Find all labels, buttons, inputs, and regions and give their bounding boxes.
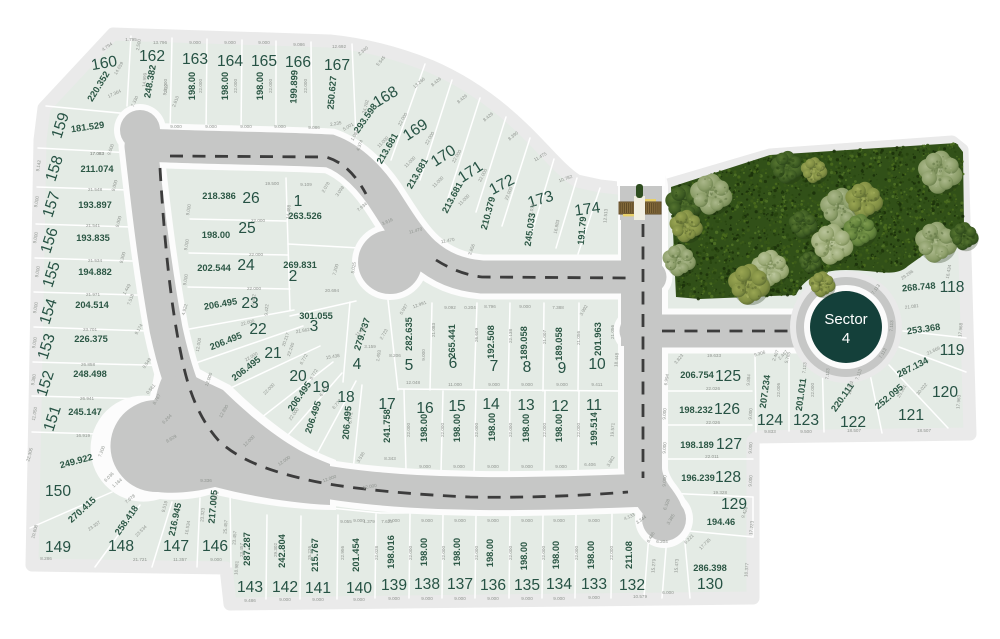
svg-text:211.074: 211.074 — [80, 164, 114, 174]
svg-text:22.011: 22.011 — [705, 454, 719, 459]
svg-text:165: 165 — [251, 53, 277, 70]
svg-text:22.000: 22.000 — [609, 546, 614, 560]
svg-text:9.055: 9.055 — [340, 519, 352, 524]
svg-text:198.016: 198.016 — [386, 535, 396, 569]
svg-text:7.113: 7.113 — [825, 368, 831, 380]
svg-text:9.000: 9.000 — [553, 596, 565, 601]
svg-text:198.00: 198.00 — [419, 538, 429, 566]
svg-text:192.508: 192.508 — [486, 325, 496, 359]
svg-text:241.758: 241.758 — [382, 409, 392, 443]
svg-text:11.357: 11.357 — [173, 557, 187, 562]
svg-text:127: 127 — [716, 436, 742, 453]
svg-text:201.454: 201.454 — [351, 537, 361, 571]
svg-text:9.000: 9.000 — [662, 407, 668, 419]
svg-text:22.026: 22.026 — [706, 420, 720, 425]
svg-text:198.00: 198.00 — [551, 541, 561, 569]
svg-text:22.000: 22.000 — [576, 423, 581, 437]
svg-text:198.00: 198.00 — [419, 414, 429, 442]
svg-text:Sector: Sector — [824, 311, 867, 328]
svg-text:118: 118 — [940, 279, 965, 296]
svg-text:4.922: 4.922 — [251, 293, 257, 305]
svg-text:7.388: 7.388 — [552, 305, 564, 310]
svg-text:25.226: 25.226 — [307, 546, 312, 560]
svg-text:9.000: 9.000 — [487, 596, 499, 601]
svg-text:9.411: 9.411 — [591, 382, 603, 387]
svg-text:20.694: 20.694 — [325, 288, 339, 293]
svg-text:198.00: 198.00 — [485, 539, 495, 567]
svg-text:13: 13 — [517, 397, 534, 414]
svg-text:22.000: 22.000 — [198, 79, 203, 93]
svg-text:22.000: 22.000 — [408, 546, 413, 560]
svg-text:263.526: 263.526 — [288, 211, 322, 221]
svg-text:9.486: 9.486 — [244, 598, 256, 603]
svg-text:286.398: 286.398 — [693, 563, 727, 573]
svg-text:6.000: 6.000 — [662, 590, 674, 595]
svg-text:9.000: 9.000 — [748, 441, 754, 453]
svg-text:19.633: 19.633 — [707, 353, 721, 358]
svg-text:9.422: 9.422 — [264, 303, 270, 315]
svg-text:164: 164 — [217, 53, 243, 70]
svg-text:8.343: 8.343 — [384, 456, 396, 461]
svg-text:141: 141 — [305, 580, 331, 597]
svg-text:198.00: 198.00 — [521, 414, 531, 442]
svg-text:9.000: 9.000 — [419, 464, 431, 469]
svg-text:269.831: 269.831 — [283, 260, 317, 270]
svg-text:21.541: 21.541 — [86, 223, 100, 228]
svg-text:9.336: 9.336 — [200, 478, 212, 483]
svg-text:12.692: 12.692 — [332, 44, 346, 49]
svg-text:9.000: 9.000 — [189, 40, 201, 45]
svg-text:21.534: 21.534 — [88, 258, 102, 263]
svg-text:8: 8 — [523, 359, 532, 376]
svg-text:21: 21 — [264, 345, 281, 362]
svg-text:23.701: 23.701 — [83, 327, 97, 332]
svg-text:9.000: 9.000 — [353, 597, 365, 602]
svg-text:9.109: 9.109 — [300, 182, 312, 187]
svg-text:1: 1 — [294, 193, 303, 210]
svg-text:10.579: 10.579 — [633, 594, 647, 599]
svg-text:123: 123 — [793, 412, 819, 429]
svg-text:18.507: 18.507 — [917, 428, 931, 433]
svg-text:6.204: 6.204 — [656, 539, 668, 544]
svg-text:9.000: 9.000 — [453, 464, 465, 469]
svg-text:199.899: 199.899 — [288, 70, 299, 104]
svg-text:198.00: 198.00 — [202, 230, 230, 240]
svg-text:7.113: 7.113 — [802, 362, 808, 374]
svg-text:301.055: 301.055 — [299, 311, 333, 321]
svg-text:7: 7 — [490, 358, 499, 375]
svg-text:22.000: 22.000 — [474, 546, 479, 560]
svg-text:14: 14 — [482, 396, 500, 413]
svg-text:22.000: 22.000 — [163, 79, 168, 93]
svg-text:12: 12 — [551, 398, 568, 415]
svg-text:9.000: 9.000 — [588, 595, 600, 600]
svg-text:11: 11 — [586, 397, 602, 414]
svg-text:22.000: 22.000 — [474, 423, 479, 437]
svg-text:22.006: 22.006 — [776, 383, 781, 397]
svg-text:9.000: 9.000 — [454, 596, 466, 601]
svg-text:9.884: 9.884 — [746, 373, 752, 385]
svg-text:6.772: 6.772 — [348, 411, 354, 423]
svg-text:18.507: 18.507 — [847, 428, 861, 433]
svg-text:137: 137 — [447, 576, 473, 593]
svg-text:201.963: 201.963 — [593, 322, 603, 356]
svg-text:193.835: 193.835 — [76, 233, 110, 243]
svg-text:22.000: 22.000 — [233, 79, 238, 93]
svg-text:143: 143 — [237, 579, 263, 596]
svg-text:9.000: 9.000 — [521, 518, 533, 523]
svg-text:126: 126 — [714, 401, 740, 418]
svg-text:9.000: 9.000 — [421, 518, 433, 523]
svg-text:138: 138 — [414, 576, 440, 593]
svg-text:198.00: 198.00 — [220, 72, 230, 100]
svg-text:202.544: 202.544 — [197, 263, 231, 273]
svg-text:204.514: 204.514 — [75, 300, 109, 310]
svg-text:282.635: 282.635 — [404, 317, 414, 351]
svg-text:9.000: 9.000 — [454, 518, 466, 523]
svg-text:6.406: 6.406 — [584, 462, 596, 467]
svg-text:226.375: 226.375 — [74, 334, 108, 344]
svg-text:120: 120 — [932, 384, 958, 401]
svg-text:16.919: 16.919 — [76, 433, 90, 438]
svg-text:22.000: 22.000 — [251, 218, 265, 223]
svg-text:8.286: 8.286 — [40, 556, 52, 561]
svg-text:22.000: 22.000 — [508, 423, 513, 437]
svg-text:124: 124 — [757, 412, 783, 429]
svg-text:12.048: 12.048 — [406, 380, 420, 385]
svg-text:9.000: 9.000 — [662, 441, 668, 453]
svg-text:19.500: 19.500 — [265, 181, 279, 186]
svg-text:136: 136 — [480, 577, 506, 594]
svg-text:7.622: 7.622 — [381, 519, 393, 524]
svg-text:9.092: 9.092 — [444, 305, 456, 310]
svg-text:22.000: 22.000 — [247, 286, 261, 291]
svg-text:134: 134 — [546, 576, 572, 593]
svg-text:21.971: 21.971 — [86, 292, 100, 297]
svg-text:19.328: 19.328 — [713, 490, 727, 495]
svg-text:23.457: 23.457 — [239, 543, 244, 557]
svg-text:26.941: 26.941 — [80, 396, 94, 401]
svg-text:121: 121 — [898, 407, 924, 424]
svg-text:5: 5 — [405, 357, 414, 374]
svg-text:15: 15 — [448, 398, 466, 415]
svg-text:9.000: 9.000 — [224, 40, 236, 45]
svg-text:198.189: 198.189 — [680, 440, 714, 450]
svg-text:135: 135 — [514, 577, 540, 594]
svg-text:21.007: 21.007 — [542, 330, 547, 344]
svg-text:139: 139 — [381, 577, 407, 594]
svg-text:242.804: 242.804 — [277, 533, 287, 567]
svg-text:193.897: 193.897 — [78, 200, 112, 210]
svg-text:133: 133 — [581, 576, 607, 593]
svg-text:1.795: 1.795 — [125, 37, 137, 42]
svg-text:22.000: 22.000 — [508, 546, 513, 560]
svg-text:189.058: 189.058 — [519, 326, 529, 360]
svg-text:24: 24 — [237, 257, 255, 274]
svg-text:194.46: 194.46 — [707, 517, 735, 527]
svg-text:22.000: 22.000 — [268, 79, 273, 93]
svg-text:9.000: 9.000 — [258, 40, 270, 45]
svg-text:9.000: 9.000 — [748, 407, 754, 419]
svg-text:132: 132 — [619, 577, 645, 594]
svg-text:21.548: 21.548 — [88, 187, 102, 192]
svg-text:198.00: 198.00 — [586, 541, 596, 569]
svg-text:9.000: 9.000 — [556, 382, 568, 387]
svg-text:9.000: 9.000 — [421, 349, 426, 361]
svg-text:22.000: 22.000 — [542, 423, 547, 437]
svg-text:9.000: 9.000 — [388, 596, 400, 601]
svg-text:9.000: 9.000 — [588, 518, 600, 523]
svg-text:26.858: 26.858 — [81, 362, 95, 367]
svg-text:9.000: 9.000 — [170, 124, 182, 129]
svg-text:9: 9 — [558, 360, 567, 377]
svg-text:13.796: 13.796 — [153, 40, 167, 45]
svg-text:147: 147 — [163, 538, 189, 555]
svg-text:9.000: 9.000 — [487, 464, 499, 469]
svg-text:22.000: 22.000 — [810, 383, 815, 397]
svg-text:9.000: 9.000 — [521, 596, 533, 601]
svg-text:9.000: 9.000 — [488, 382, 500, 387]
svg-text:196.239: 196.239 — [681, 473, 715, 483]
svg-text:248.498: 248.498 — [73, 369, 107, 379]
svg-text:2: 2 — [289, 268, 298, 285]
svg-text:9.000: 9.000 — [555, 464, 567, 469]
svg-text:150: 150 — [45, 483, 71, 500]
svg-text:9.000: 9.000 — [748, 474, 754, 486]
svg-text:22.000: 22.000 — [441, 546, 446, 560]
svg-text:21.056: 21.056 — [610, 325, 615, 339]
svg-text:211.08: 211.08 — [624, 541, 634, 569]
svg-text:22.028: 22.028 — [374, 546, 379, 560]
svg-text:198.00: 198.00 — [487, 413, 497, 441]
svg-text:206.754: 206.754 — [680, 370, 714, 380]
svg-text:9.500: 9.500 — [800, 429, 812, 434]
svg-text:198.232: 198.232 — [679, 405, 713, 415]
svg-text:166: 166 — [285, 54, 311, 71]
svg-text:9.000: 9.000 — [421, 596, 433, 601]
svg-text:7.113: 7.113 — [889, 320, 895, 332]
svg-text:9.000: 9.000 — [553, 518, 565, 523]
svg-text:9.000: 9.000 — [521, 382, 533, 387]
svg-text:8.206: 8.206 — [389, 353, 401, 358]
svg-text:198.00: 198.00 — [519, 542, 529, 570]
svg-text:142: 142 — [272, 579, 298, 596]
svg-text:3.159: 3.159 — [364, 344, 376, 349]
svg-text:22.000: 22.000 — [541, 546, 546, 560]
svg-text:11.000: 11.000 — [448, 382, 462, 387]
svg-text:22.026: 22.026 — [706, 386, 720, 391]
svg-text:8.796: 8.796 — [484, 304, 496, 309]
svg-text:218.386: 218.386 — [202, 191, 236, 201]
svg-text:1.379: 1.379 — [363, 519, 375, 524]
svg-text:22.000: 22.000 — [440, 423, 445, 437]
svg-text:10: 10 — [588, 356, 606, 373]
svg-text:148: 148 — [108, 538, 134, 555]
svg-text:26.609: 26.609 — [474, 328, 479, 342]
svg-text:119: 119 — [940, 342, 965, 359]
svg-text:128: 128 — [715, 469, 741, 486]
svg-text:26: 26 — [242, 190, 259, 207]
svg-text:198.00: 198.00 — [187, 72, 197, 100]
svg-text:21.083: 21.083 — [431, 323, 436, 337]
svg-text:4: 4 — [353, 356, 362, 373]
svg-text:22.000: 22.000 — [406, 423, 411, 437]
svg-text:149: 149 — [45, 539, 71, 556]
svg-text:163: 163 — [182, 51, 208, 68]
svg-text:198.00: 198.00 — [452, 414, 462, 442]
svg-text:9.086: 9.086 — [293, 42, 305, 47]
svg-text:198.00: 198.00 — [554, 414, 564, 442]
svg-text:198.00: 198.00 — [255, 72, 265, 100]
svg-text:194.882: 194.882 — [78, 267, 112, 277]
svg-text:9.000: 9.000 — [519, 304, 531, 309]
svg-text:9.000: 9.000 — [274, 124, 286, 129]
svg-text:29.302: 29.302 — [273, 543, 278, 557]
svg-text:22.138: 22.138 — [508, 329, 513, 343]
svg-text:140: 140 — [346, 580, 372, 597]
svg-text:9.000: 9.000 — [205, 124, 217, 129]
svg-text:17.083: 17.083 — [90, 151, 104, 156]
svg-text:21.056: 21.056 — [576, 331, 581, 345]
svg-text:9.000: 9.000 — [279, 597, 291, 602]
svg-text:21.721: 21.721 — [133, 557, 147, 562]
svg-text:22.000: 22.000 — [249, 252, 263, 257]
svg-text:9.000: 9.000 — [521, 464, 533, 469]
svg-text:9.000: 9.000 — [487, 518, 499, 523]
svg-text:22.956: 22.956 — [340, 546, 345, 560]
svg-text:189.058: 189.058 — [554, 327, 564, 361]
svg-text:167: 167 — [324, 57, 350, 74]
svg-text:22.000: 22.000 — [574, 546, 579, 560]
svg-text:9.000: 9.000 — [662, 474, 668, 486]
svg-text:245.147: 245.147 — [68, 407, 102, 417]
svg-text:9.833: 9.833 — [764, 429, 776, 434]
svg-text:162: 162 — [139, 48, 165, 65]
svg-text:9.000: 9.000 — [312, 597, 324, 602]
svg-text:199.514: 199.514 — [589, 411, 599, 445]
svg-text:22.000: 22.000 — [303, 79, 308, 93]
svg-text:9.000: 9.000 — [210, 557, 222, 562]
svg-text:125: 125 — [715, 368, 741, 385]
svg-text:146: 146 — [202, 538, 228, 555]
svg-text:9.000: 9.000 — [240, 124, 252, 129]
svg-text:9.086: 9.086 — [308, 125, 320, 130]
svg-text:130: 130 — [697, 576, 723, 593]
svg-text:4: 4 — [842, 330, 850, 347]
svg-text:0.204: 0.204 — [464, 305, 476, 310]
svg-text:265.441: 265.441 — [447, 324, 457, 358]
svg-text:198.00: 198.00 — [452, 538, 462, 566]
